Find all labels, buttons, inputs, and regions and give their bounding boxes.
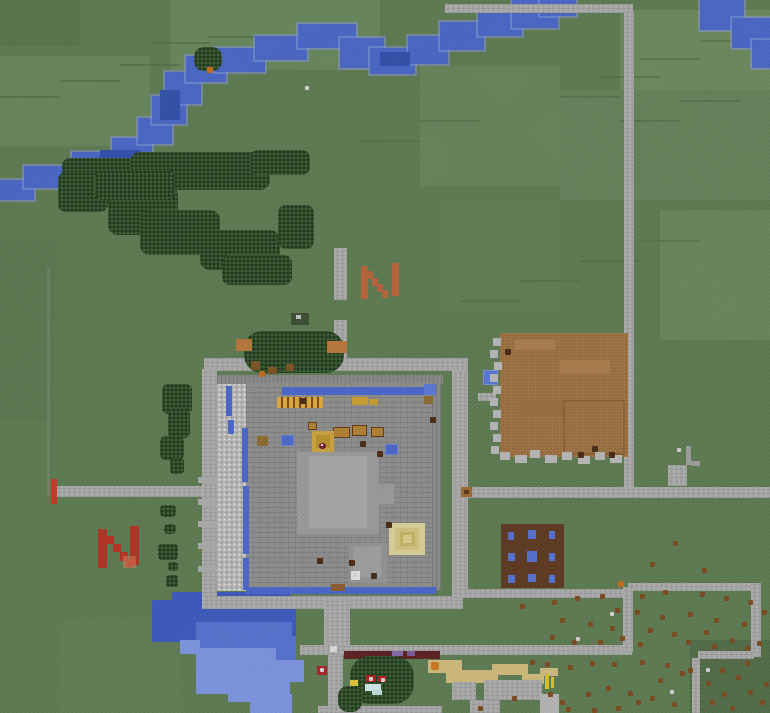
light-accent-dots [576,637,580,641]
letter-n-large [106,536,114,544]
dark-soil-dots [349,560,355,566]
scattered-item-dots [710,700,715,705]
scattered-item-dots [730,638,735,643]
scattered-item-dots [568,665,573,670]
chest [371,427,384,437]
dark-soil-dots [360,441,366,447]
tree-trunk [268,367,277,374]
terrain-patch [420,66,560,186]
moat-water [243,558,249,590]
scattered-item-dots [673,541,678,546]
tree-trunk [251,361,260,370]
dark-soil-dots [592,446,598,452]
contour-line [560,96,620,98]
contour-line [680,100,740,102]
dark-soil-dots [430,417,436,423]
dirt-border-block [490,398,498,406]
contour-line [150,42,210,44]
world-map[interactable] [0,0,770,713]
moat-water [228,420,234,434]
forest-blob [250,150,310,175]
light-accent-dots [381,678,385,682]
scattered-item-dots [615,608,620,613]
village-purple-block [407,651,415,656]
dirt-border-block [493,434,501,442]
contour-line [420,120,480,122]
contour-line [640,58,700,60]
scattered-item-dots [650,562,655,567]
pond-shallow [276,660,304,682]
village-white-block [330,646,337,652]
gold-block [352,397,368,405]
scattered-item-dots [586,692,591,697]
dark-soil-dots [377,451,383,457]
scattered-item-dots [640,594,645,599]
farm-water [549,531,555,539]
dark-soil-dots [317,558,323,564]
altar-beacon-highlight [321,444,323,446]
terrain-patch [0,56,150,146]
tree-trunk [286,364,294,371]
farm-water [508,532,514,540]
moat-water [243,486,249,554]
road-north-approach [334,248,347,300]
letter-l-gray [691,461,700,466]
orange-accent-dots [618,581,624,587]
scattered-item-dots [680,671,685,676]
scattered-item-dots [764,682,769,687]
scattered-item-dots [592,708,597,713]
dirt-border-block [530,450,540,458]
letter-n-small [382,290,388,298]
scattered-item-dots [620,636,625,641]
stone-patch [452,682,476,700]
letter-n-large [113,544,121,552]
scattered-item-dots [742,622,747,627]
cyan-block [372,690,382,695]
light-accent-dots [706,668,710,672]
scattered-item-dots [612,662,617,667]
dirt-field-light-patch [515,340,555,350]
scattered-item-dots [672,632,677,637]
large-building-roof [309,456,367,528]
tree-column-blob [170,458,184,474]
crate [424,396,433,404]
scattered-item-dots [606,686,611,691]
forest-blob [278,205,314,249]
scattered-item-dots [636,700,641,705]
yellow-stick [551,677,554,688]
scattered-item-dots [706,681,711,686]
compound-ring-road-west [202,369,217,609]
letter-n-large [98,529,107,568]
scattered-item-dots [757,641,762,646]
terrain-patch [560,90,770,200]
dirt-border-block [491,446,499,454]
river-segment [752,40,770,68]
farm-water [527,551,537,562]
water-basin [385,444,398,455]
scattered-item-dots [575,596,580,601]
chest [333,427,350,438]
chunk-boundary-line [47,268,50,496]
bush [158,544,178,560]
light-accent-dots [610,612,614,616]
scattered-item-dots [660,615,665,620]
dark-soil-dots [386,522,392,528]
road-main-east [455,487,770,498]
scattered-item-dots [712,644,717,649]
road-mid-segment [623,587,633,652]
orange-accent-dots [259,371,265,377]
dirt-border-block [515,455,527,463]
scattered-item-dots [600,594,605,599]
scattered-item-dots [730,706,735,711]
scattered-item-dots [640,660,645,665]
compound-ring-road-east [452,370,468,598]
moat-water-top [282,387,428,395]
pond-shallow [250,694,292,713]
scattered-item-dots [658,678,663,683]
dark-soil-dots [578,452,584,458]
dirt-border-block [595,452,605,460]
dirt-border-block [493,386,501,394]
acacia-branch [327,341,347,353]
scattered-item-dots [762,610,767,615]
orange-accent-dots [207,67,213,73]
contour-line [120,64,180,66]
contour-line [640,240,700,242]
scattered-item-dots [598,640,603,645]
scattered-item-dots [610,626,615,631]
river-deep-core [380,52,410,66]
scattered-item-dots [704,630,709,635]
scattered-item-dots [566,707,571,712]
farm-water [508,553,515,561]
dark-soil-dots [505,349,511,355]
building-annex [377,484,394,504]
dirt-border-block [545,455,557,463]
scattered-item-dots [650,696,655,701]
road-field-west [692,658,700,713]
bush [168,562,178,571]
scattered-item-dots [760,700,765,705]
farm-water [549,575,555,583]
dark-soil-dots [371,573,377,579]
scattered-item-dots [478,706,483,711]
scattered-item-dots [520,604,525,609]
dirt-border-block [494,362,502,370]
forest-blob [95,170,175,200]
road-main-west [56,486,206,497]
small-hut-light [296,315,301,319]
scattered-item-dots [663,590,668,595]
river-deep-core [160,90,180,120]
scattered-item-dots [724,596,729,601]
contour-line [0,96,60,98]
contour-line [360,140,420,142]
scattered-item-dots [702,568,707,573]
yellow-patch [350,680,358,686]
dock-plank [331,584,345,591]
item-frame-center [464,490,469,494]
yellow-stick [545,674,549,689]
scattered-item-dots [714,618,719,623]
scattered-item-dots [688,668,693,673]
farm-water [508,575,515,583]
road-bottom-west [318,706,442,713]
tree-column-blob [160,436,184,460]
scattered-item-dots [688,612,693,617]
stone-patch [470,700,500,713]
scattered-item-dots [722,692,727,697]
terrain-patch [440,200,560,310]
scattered-item-dots [686,640,691,645]
scattered-item-dots [736,675,741,680]
light-accent-dots [677,448,681,452]
terrain-patch [0,0,80,46]
scattered-item-dots [635,610,640,615]
light-accent-dots [305,86,309,90]
dirt-border-block [493,338,501,346]
dirt-field-light-patch [560,360,610,374]
forest-blob [222,255,292,285]
contour-line [520,280,580,282]
light-accent-dots [320,668,324,672]
light-accent-dots [353,573,357,577]
farm-water [528,574,536,582]
moat-water [242,428,248,482]
lantern-dot [431,662,439,670]
pond-shallow [180,640,200,654]
dark-soil-dots [609,452,615,458]
light-accent-dots [670,690,674,694]
scattered-item-dots [548,692,553,697]
moat-water [226,386,232,416]
road-l-stub [668,465,687,486]
scattered-item-dots [745,661,750,666]
village-tree-small [338,686,362,712]
dirt-border-block [490,350,498,358]
sand-path [540,668,558,676]
water-basin [281,435,294,446]
terrain-patch [660,210,770,340]
scattered-item-dots [545,662,550,667]
road-top-east-west [445,4,633,13]
dirt-border-block [500,452,510,460]
road-field-south [698,651,754,659]
acacia-branch [236,339,252,351]
scattered-item-dots [560,700,565,705]
chest [308,422,317,430]
farm-water [528,530,536,539]
dirt-border-block [493,410,501,418]
scattered-item-dots [700,592,705,597]
dark-soil-dots [300,398,306,404]
scattered-item-dots [748,690,753,695]
road-south-gate [324,598,350,650]
contour-line [460,300,520,302]
moat-water-corner [424,384,436,395]
scattered-item-dots [588,622,593,627]
light-accent-dots [369,677,373,681]
scattered-item-dots [720,668,725,673]
scattered-item-dots [672,702,677,707]
contour-line [60,80,120,82]
scattered-item-dots [530,660,535,665]
tree-column-blob [168,408,190,438]
letter-n-small [392,263,399,296]
scattered-item-dots [512,696,517,701]
scattered-item-dots [745,646,750,651]
dirt-border-block [562,452,572,460]
dirt-border-block [490,374,498,382]
farm-water [549,553,555,561]
scattered-item-dots [552,600,557,605]
letter-n-large-highlight [123,556,136,568]
dirt-field-dark-patch [520,400,566,416]
bush [160,505,176,517]
scattered-item-dots [590,661,595,666]
scattered-item-dots [550,635,555,640]
scattered-item-dots [648,628,653,633]
scattered-item-dots [665,663,670,668]
crate [257,436,268,446]
road-field-north [628,583,760,591]
gold-block [369,399,378,405]
bush [166,575,178,587]
bush [164,524,176,534]
scattered-item-dots [748,600,753,605]
sandstone-pyramid-cap [403,535,412,543]
dirt-border-block [490,422,498,430]
compound-wall-east [432,383,441,590]
scattered-item-dots [638,642,643,647]
red-road-end-marker [51,479,57,504]
scattered-item-dots [560,618,565,623]
scattered-item-dots [616,706,621,711]
chest [352,425,367,436]
scattered-item-dots [628,691,633,696]
